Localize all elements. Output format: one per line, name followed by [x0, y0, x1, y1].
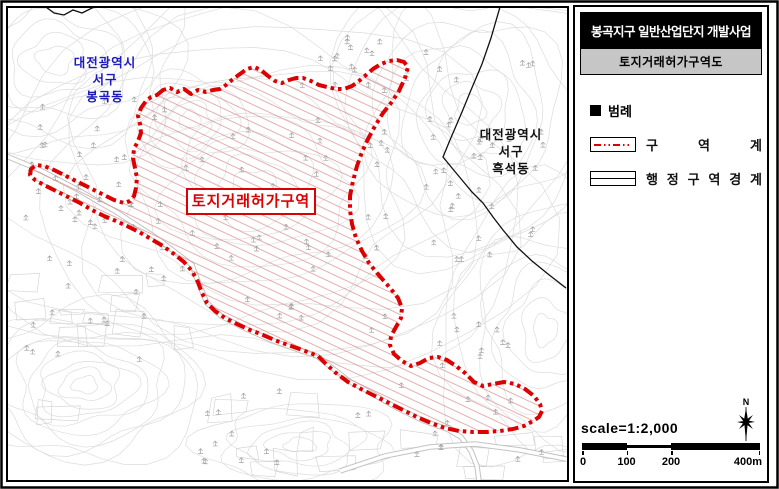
legend-item-admin-boundary: 행정구역경계: [590, 169, 767, 188]
scale-tick-label: 100: [617, 456, 635, 468]
map-subtitle: 토지거래허가구역도: [581, 48, 761, 74]
scale-bar-segment: [627, 445, 672, 448]
info-panel: 봉곡지구 일반산업단지 개발사업 토지거래허가구역도 범례 구역계: [573, 5, 769, 483]
legend-item-label: 행정구역경계: [646, 169, 762, 188]
scale-labels: 0 100 200 400m: [582, 456, 760, 469]
scale-tick: [759, 451, 761, 455]
map-sheet: 대전광역시 서구 봉곡동 대전광역시 서구 흑석동 토지거래허가구역 봉곡지구 …: [0, 0, 779, 489]
legend-square-icon: [590, 105, 601, 116]
region-label-line: 봉곡동: [54, 89, 156, 106]
region-label-bonggok: 대전광역시 서구 봉곡동: [54, 55, 156, 106]
region-label-line: 대전광역시: [54, 55, 156, 72]
region-label-line: 대전광역시: [459, 127, 563, 144]
region-label-line: 서구: [54, 72, 156, 89]
legend: 범례 구역계 행정구역경계: [590, 101, 767, 188]
legend-header-label: 범례: [608, 101, 632, 120]
compass-n-label: N: [743, 397, 750, 407]
zone-title-box: 토지거래허가구역: [186, 188, 316, 215]
scale-tick-label: 200: [662, 456, 680, 468]
black-solid-line-icon: [591, 178, 635, 180]
scale-bar-segment: [582, 443, 627, 450]
region-label-heukseok: 대전광역시 서구 흑석동: [459, 127, 563, 178]
scale-tick-label: 0: [580, 456, 586, 468]
scale-tick: [582, 451, 584, 455]
legend-header: 범례: [590, 101, 767, 120]
legend-item-zone-boundary: 구역계: [590, 135, 767, 154]
scale-tick-label: 400m: [734, 456, 762, 468]
scale-tick: [627, 451, 629, 455]
project-title: 봉곡지구 일반산업단지 개발사업: [581, 13, 761, 48]
title-block: 봉곡지구 일반산업단지 개발사업 토지거래허가구역도: [580, 12, 762, 75]
admin-boundary-swatch: [590, 171, 636, 186]
region-label-line: 흑석동: [459, 161, 563, 178]
scale-tick: [671, 451, 673, 455]
compass-north-icon: N: [729, 395, 763, 445]
zone-boundary-swatch: [590, 137, 636, 152]
legend-item-label: 구역계: [646, 135, 762, 154]
region-label-line: 서구: [459, 144, 563, 161]
red-dashdot-line-icon: [593, 141, 633, 149]
